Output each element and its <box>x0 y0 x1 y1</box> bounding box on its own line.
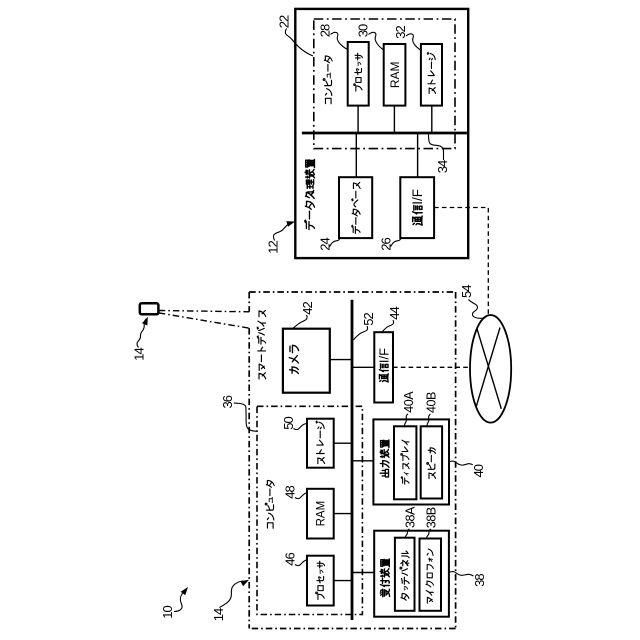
svg-text:10: 10 <box>160 606 175 619</box>
svg-text:24: 24 <box>318 238 333 251</box>
svg-text:50: 50 <box>281 417 296 430</box>
svg-text:44: 44 <box>387 307 402 320</box>
svg-text:38B: 38B <box>425 507 439 528</box>
svg-text:46: 46 <box>283 553 298 566</box>
svg-text:52: 52 <box>361 313 376 326</box>
svg-text:26: 26 <box>379 238 394 251</box>
svg-text:I/F: I/F <box>410 189 425 205</box>
svg-text:54: 54 <box>459 285 474 298</box>
svg-text:38A: 38A <box>404 506 418 528</box>
svg-text:40A: 40A <box>402 391 416 413</box>
svg-text:48: 48 <box>283 486 298 499</box>
svg-text:12: 12 <box>265 241 280 254</box>
svg-text:36: 36 <box>220 395 235 408</box>
svg-text:14: 14 <box>131 348 146 361</box>
svg-text:I/F: I/F <box>376 348 391 363</box>
svg-text:38: 38 <box>472 574 487 587</box>
svg-text:22: 22 <box>277 15 292 28</box>
svg-text:14: 14 <box>211 608 226 621</box>
svg-text:40: 40 <box>471 464 486 477</box>
svg-text:28: 28 <box>318 24 333 37</box>
svg-text:30: 30 <box>356 24 371 37</box>
svg-text:34: 34 <box>435 160 450 173</box>
svg-text:RAM: RAM <box>388 61 402 88</box>
svg-text:32: 32 <box>393 26 408 39</box>
svg-text:40B: 40B <box>424 392 438 413</box>
svg-text:RAM: RAM <box>315 501 327 527</box>
svg-text:42: 42 <box>300 302 315 315</box>
